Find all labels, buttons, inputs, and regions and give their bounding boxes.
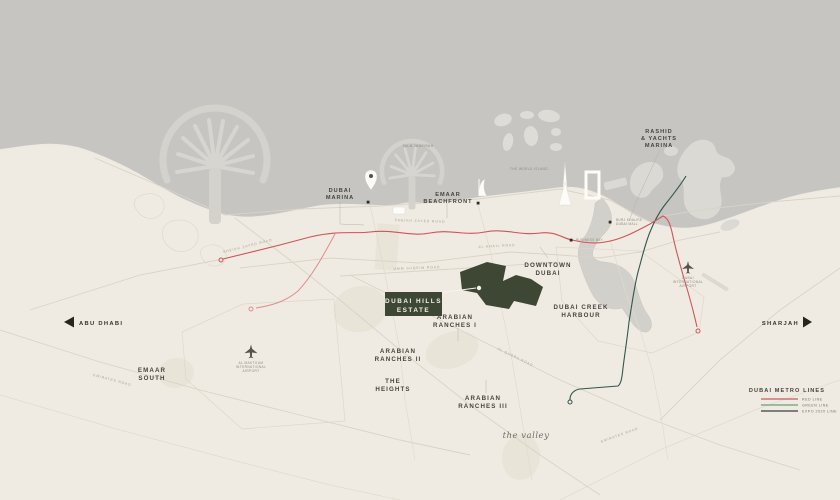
legend-expo-label: EXPO 2020 LINE: [802, 410, 837, 414]
label-creek-harbour-1: DUBAI CREEK: [553, 304, 608, 311]
label-world-islands: THE WORLD ISLAND: [510, 167, 548, 171]
label-creek-harbour-2: HARBOUR: [561, 312, 600, 319]
label-ranches2-1: ARABIAN: [380, 348, 416, 355]
label-downtown-2: DUBAI: [535, 270, 560, 277]
red-line-terminus-west: [219, 258, 223, 262]
label-emaar-south-2: SOUTH: [138, 375, 165, 382]
label-the-valley: the valley: [503, 431, 550, 441]
label-ranches3-2: RANCHES III: [458, 403, 508, 410]
legend-green-label: GREEN LINE: [802, 404, 829, 408]
label-sharjah: SHARJAH: [762, 321, 799, 327]
red-line-terminus-east: [696, 329, 700, 333]
label-ranches2-2: RANCHES II: [375, 356, 422, 363]
label-al-maktoum-3: AIRPORT: [243, 369, 260, 373]
label-dubai-marina-2: MARINA: [326, 195, 354, 201]
label-downtown-1: DOWNTOWN: [524, 262, 571, 269]
dubai-hills-estate-badge: DUBAI HILLS ESTATE: [385, 292, 442, 316]
label-dubai-hills-2: ESTATE: [397, 307, 430, 314]
legend-red-label: RED LINE: [802, 398, 823, 402]
green-line-terminus: [568, 400, 572, 404]
label-ranches3-1: ARABIAN: [465, 395, 501, 402]
map-canvas: PALM JUMEIRAH THE WORLD ISLAND: [0, 0, 840, 500]
estate-marker-dot: [477, 286, 481, 290]
station-label-business-bay: BUSINESS BAY: [576, 238, 603, 242]
expo-branch-terminus: [249, 307, 253, 311]
label-rashid-2: & YACHTS: [641, 136, 677, 142]
station-label-burj-khalifa-2: DUBAI MALL: [616, 222, 638, 226]
legend-title: DUBAI METRO LINES: [749, 388, 825, 394]
label-ranches1-1: ARABIAN: [437, 314, 473, 321]
label-rashid-1: RASHID: [645, 129, 672, 135]
label-emaar-beachfront-2: BEACHFRONT: [423, 199, 472, 205]
label-emaar-beachfront-1: EMAAR: [435, 192, 461, 198]
marina-building-icon: [393, 207, 405, 214]
label-rashid-3: MARINA: [645, 143, 673, 149]
label-emaar-south-1: EMAAR: [138, 367, 166, 374]
label-dxb-3: AIRPORT: [680, 284, 697, 288]
label-heights-2: HEIGHTS: [375, 386, 410, 393]
label-ranches1-2: RANCHES I: [433, 322, 477, 329]
dubai-location-map: PALM JUMEIRAH THE WORLD ISLAND: [0, 0, 840, 500]
label-abu-dhabi: ABU DHABI: [79, 321, 123, 327]
label-palm-jumeirah: PALM JUMEIRAH: [403, 144, 434, 148]
label-heights-1: THE: [385, 378, 401, 385]
label-dubai-hills-1: DUBAI HILLS: [385, 298, 442, 305]
label-dubai-marina-1: DUBAI: [329, 188, 352, 194]
